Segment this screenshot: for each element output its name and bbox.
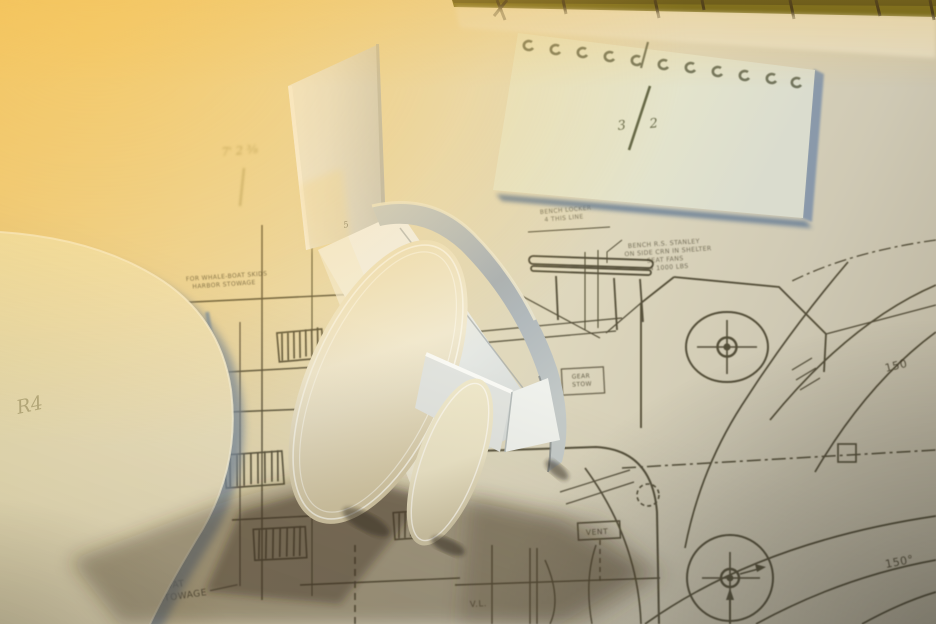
shelter-note: BENCH R.S. STANLEY ON SIDE CRN IN SHELTE… (624, 237, 714, 274)
octagon-platform (606, 277, 936, 428)
pencil-marks: 7' 2 ⅜ (207, 142, 259, 348)
svg-text:STOW: STOW (572, 381, 592, 389)
photo-of-card-model-on-blueprint: 150 150° VENT V.L. FOR WHALE-BOAT SKIDS … (0, 0, 936, 624)
svg-text:2: 2 (648, 116, 659, 132)
mount-crosshair-lower (687, 535, 773, 624)
label-150deg: 150° (884, 553, 915, 571)
label-150: 150 (884, 357, 909, 375)
svg-text:3: 3 (617, 118, 627, 134)
dashed-circle (637, 484, 659, 506)
centerline-box (838, 444, 856, 462)
scene-drawing: 150 150° VENT V.L. FOR WHALE-BOAT SKIDS … (0, 0, 936, 624)
dimension-note: 7' 2 ⅜ (221, 142, 259, 159)
svg-text:GEAR: GEAR (572, 373, 591, 381)
centerline (622, 450, 936, 468)
svg-text:4 1000 LBS: 4 1000 LBS (649, 263, 689, 273)
mount-crosshair-upper (686, 312, 768, 382)
skids-note: FOR WHALE-BOAT SKIDS HARBOR STOWAGE (186, 270, 269, 291)
top-right-card: 3 2 (493, 33, 824, 228)
model-fin: 5 (288, 44, 386, 250)
gear-box: GEAR STOW (561, 367, 604, 395)
